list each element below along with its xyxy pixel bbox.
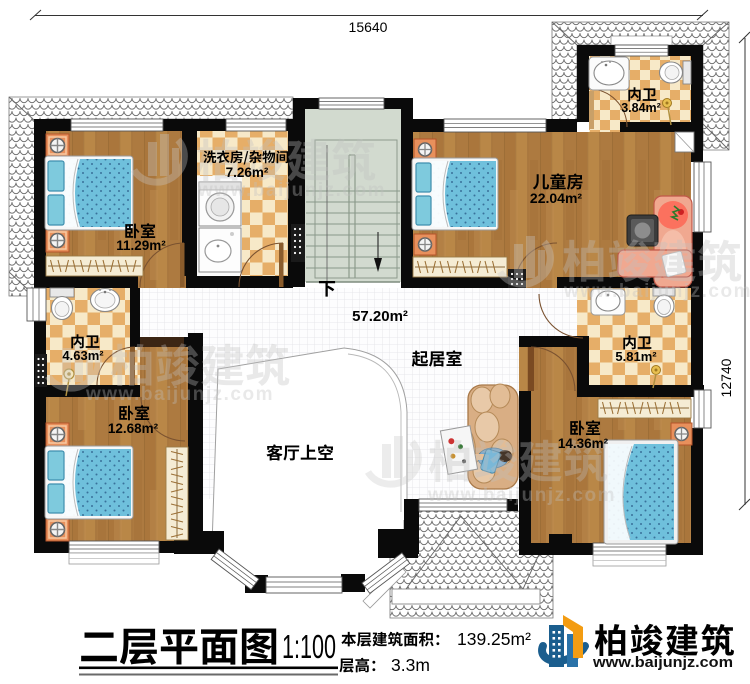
svg-text:139.25m²: 139.25m² bbox=[457, 629, 531, 649]
svg-text:www.baijunjz.com: www.baijunjz.com bbox=[563, 281, 750, 302]
svg-text:14.36m²: 14.36m² bbox=[558, 436, 609, 451]
svg-text:www.baijunjz.com: www.baijunjz.com bbox=[427, 485, 616, 506]
svg-text:7.26m²: 7.26m² bbox=[226, 165, 269, 180]
svg-text:12740: 12740 bbox=[718, 358, 734, 397]
svg-text:22.04m²: 22.04m² bbox=[530, 190, 582, 206]
svg-text:5.81m²: 5.81m² bbox=[615, 349, 657, 364]
svg-text:1:100: 1:100 bbox=[282, 628, 336, 665]
svg-text:3.84m²: 3.84m² bbox=[621, 101, 661, 115]
svg-text:4.63m²: 4.63m² bbox=[62, 348, 104, 363]
svg-text:3.3m: 3.3m bbox=[391, 655, 430, 675]
svg-text:www.baijunjz.com: www.baijunjz.com bbox=[592, 654, 733, 671]
svg-text:www.baijunjz.com: www.baijunjz.com bbox=[197, 180, 386, 201]
svg-text:11.29m²: 11.29m² bbox=[116, 238, 166, 253]
svg-text:57.20m²: 57.20m² bbox=[352, 308, 408, 325]
svg-text:15640: 15640 bbox=[349, 19, 388, 35]
svg-text:12.68m²: 12.68m² bbox=[108, 421, 159, 436]
svg-text:www.baijunjz.com: www.baijunjz.com bbox=[85, 384, 274, 405]
